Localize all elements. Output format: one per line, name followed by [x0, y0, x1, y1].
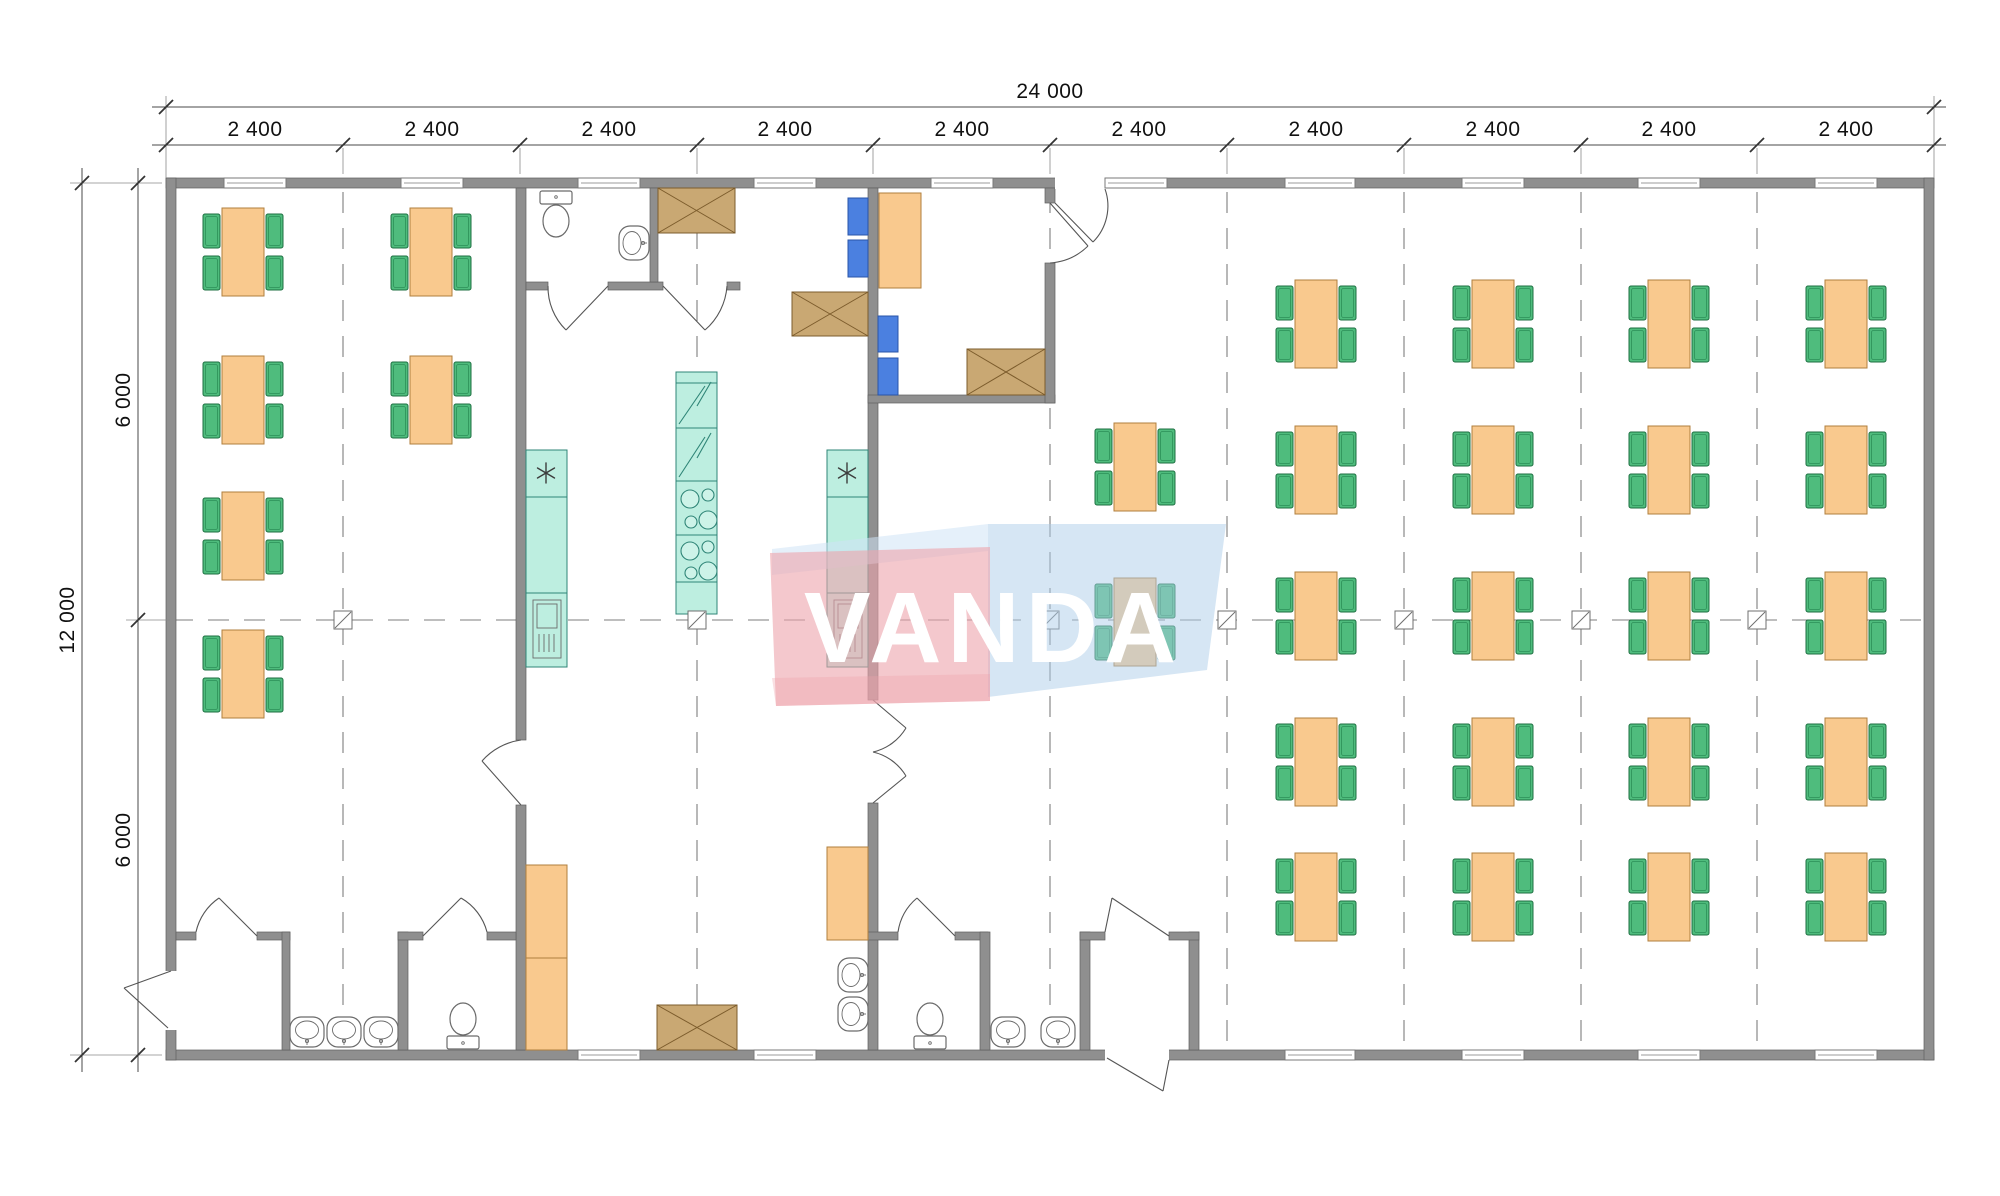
- door-vestibule: [196, 898, 257, 936]
- grid-marker-icon: [688, 611, 706, 629]
- wall-left: [166, 178, 176, 1060]
- window: [1285, 178, 1355, 188]
- window: [754, 1050, 816, 1060]
- sink-icon: [838, 997, 868, 1031]
- dim-label-bay: 2 400: [404, 118, 459, 141]
- grid-marker-icon: [1572, 611, 1590, 629]
- equipment-box: [658, 188, 735, 233]
- entry-room-furniture: [878, 193, 1045, 395]
- grid-marker-icon: [1748, 611, 1766, 629]
- door-left-exterior: [124, 971, 171, 1028]
- floor-plan-page: 24 000 2 400 2 400 2 400 2 400 2 400 2 4…: [0, 0, 2000, 1196]
- kitchen-island: [676, 582, 717, 614]
- wall-wc1-top: [398, 932, 423, 940]
- opening-top-entrance: [1055, 177, 1105, 189]
- sink-icon: [991, 1017, 1025, 1047]
- opening-bottom-entrance: [1105, 1049, 1169, 1061]
- window: [1462, 178, 1524, 188]
- cabinet: [526, 958, 567, 1050]
- grid-marker-icon: [1218, 611, 1236, 629]
- opening-left-entrance: [165, 971, 177, 1030]
- wall-washroom-right: [398, 932, 408, 1050]
- dim-label-total-width: 24 000: [1016, 80, 1083, 103]
- window: [931, 178, 993, 188]
- dim-label-bay: 2 400: [1641, 118, 1696, 141]
- locker-blue: [878, 316, 898, 352]
- sink-icon: [327, 1017, 361, 1047]
- watermark-text: VANDA: [804, 572, 1182, 684]
- window: [1815, 178, 1877, 188]
- wall-kitchen-left-upper: [516, 188, 526, 740]
- window: [1638, 1050, 1700, 1060]
- floor-plan-canvas: 24 000 2 400 2 400 2 400 2 400 2 400 2 4…: [0, 0, 2000, 1196]
- wall-entry-bottom: [868, 395, 1055, 403]
- dining-table-group: [1806, 426, 1886, 514]
- door-lobby-inner: [1105, 898, 1169, 936]
- wall-wc-top: [727, 282, 740, 290]
- grid-marker-icon: [334, 611, 352, 629]
- wall-wc-top: [526, 282, 548, 290]
- window: [1462, 1050, 1524, 1060]
- bench-table: [879, 193, 921, 288]
- dim-label-bay: 2 400: [1818, 118, 1873, 141]
- wall-wc2-top: [868, 932, 898, 940]
- wall-wc-divider: [650, 188, 658, 282]
- dining-table-group: [1276, 853, 1356, 941]
- door-closet: [663, 286, 727, 330]
- dim-label-bay: 2 400: [1288, 118, 1343, 141]
- dining-table-group: [1453, 572, 1533, 660]
- dining-table-group: [203, 492, 283, 580]
- sink-icon: [838, 958, 868, 992]
- door-kitchen-left: [482, 740, 521, 805]
- cabinet: [827, 847, 868, 940]
- dining-table-group: [1453, 853, 1533, 941]
- electric-unit-icon: [676, 383, 717, 428]
- toilet-icon: [540, 191, 572, 237]
- dining-table-group: [203, 630, 283, 718]
- wall-kitchen-left-lower: [516, 805, 526, 1050]
- locker-blue: [848, 198, 868, 235]
- wall-entry-right-stub: [1045, 188, 1055, 203]
- kitchen-counter: [526, 497, 567, 593]
- wall-lobby-top: [1080, 932, 1105, 940]
- dim-label-half-height: 6 000: [112, 812, 135, 867]
- sink-icon: [1041, 1017, 1075, 1047]
- window: [1638, 178, 1700, 188]
- toilet-icon: [447, 1003, 479, 1049]
- locker-blue: [848, 240, 868, 277]
- dim-label-bay: 2 400: [227, 118, 282, 141]
- dining-table-group: [1629, 572, 1709, 660]
- equipment-box: [657, 1005, 737, 1050]
- dining-table-group: [1629, 718, 1709, 806]
- window: [1815, 1050, 1877, 1060]
- dining-table-group: [1629, 426, 1709, 514]
- door-wc2: [898, 898, 955, 936]
- dining-table-group: [391, 356, 471, 444]
- door-kitchen-right: [873, 700, 906, 803]
- door-top-entrance: [1055, 189, 1108, 242]
- dim-label-half-height: 6 000: [112, 372, 135, 427]
- wall-lobby-right: [1189, 932, 1199, 1050]
- equipment-box: [792, 292, 868, 336]
- wall-lobby-left: [1080, 932, 1090, 1050]
- dining-table-group: [203, 208, 283, 296]
- dining-table-group: [203, 356, 283, 444]
- wall-lobby-top: [1169, 932, 1199, 940]
- wall-right: [1924, 178, 1934, 1060]
- sink-icon: [619, 226, 649, 260]
- dim-label-total-height: 12 000: [56, 586, 79, 653]
- dining-table-group: [391, 208, 471, 296]
- dining-table-group: [1453, 718, 1533, 806]
- dining-table-group: [1276, 718, 1356, 806]
- sink-icon: [290, 1017, 324, 1047]
- door-wc-kitchen: [548, 286, 608, 330]
- door-bottom-exterior: [1107, 1058, 1169, 1091]
- dim-label-bay: 2 400: [934, 118, 989, 141]
- window: [754, 178, 816, 188]
- kitchen-island: [676, 372, 717, 383]
- dining-table-group: [1276, 426, 1356, 514]
- wall-vestibule-right: [282, 932, 290, 1050]
- dim-label-bay: 2 400: [581, 118, 636, 141]
- dining-table-group: [1806, 572, 1886, 660]
- dining-table-group: [1629, 280, 1709, 368]
- dining-table-group: [1453, 426, 1533, 514]
- dining-table-group: [1806, 718, 1886, 806]
- sink-icon: [364, 1017, 398, 1047]
- window: [224, 178, 286, 188]
- cabinet: [526, 865, 567, 958]
- dim-label-bay: 2 400: [757, 118, 812, 141]
- dining-table-group: [1276, 280, 1356, 368]
- wall-vestibule-top: [176, 932, 196, 940]
- dim-label-bay: 2 400: [1111, 118, 1166, 141]
- wall-entry-right: [1045, 263, 1055, 403]
- wall-wc-top: [608, 282, 663, 290]
- dining-table-group: [1806, 280, 1886, 368]
- toilet-icon: [914, 1003, 946, 1049]
- grid-marker-icon: [1395, 611, 1413, 629]
- watermark-logo: VANDA: [770, 524, 1226, 706]
- door-entry-room: [1050, 203, 1088, 263]
- locker-blue: [878, 358, 898, 395]
- wall-wc1-top: [487, 932, 516, 940]
- dining-table-group: [1095, 423, 1175, 511]
- dim-label-bay: 2 400: [1465, 118, 1520, 141]
- window: [401, 178, 463, 188]
- window: [578, 1050, 640, 1060]
- window: [578, 178, 640, 188]
- dining-table-group: [1629, 853, 1709, 941]
- window: [1285, 1050, 1355, 1060]
- wall-kitchen-right-lower: [868, 803, 878, 1050]
- window: [1105, 178, 1167, 188]
- dining-table-group: [1276, 572, 1356, 660]
- door-wc1: [423, 898, 487, 936]
- dining-table-group: [1453, 280, 1533, 368]
- wall-wc2-right: [980, 932, 990, 1050]
- dining-table-group: [1806, 853, 1886, 941]
- equipment-box: [967, 349, 1045, 395]
